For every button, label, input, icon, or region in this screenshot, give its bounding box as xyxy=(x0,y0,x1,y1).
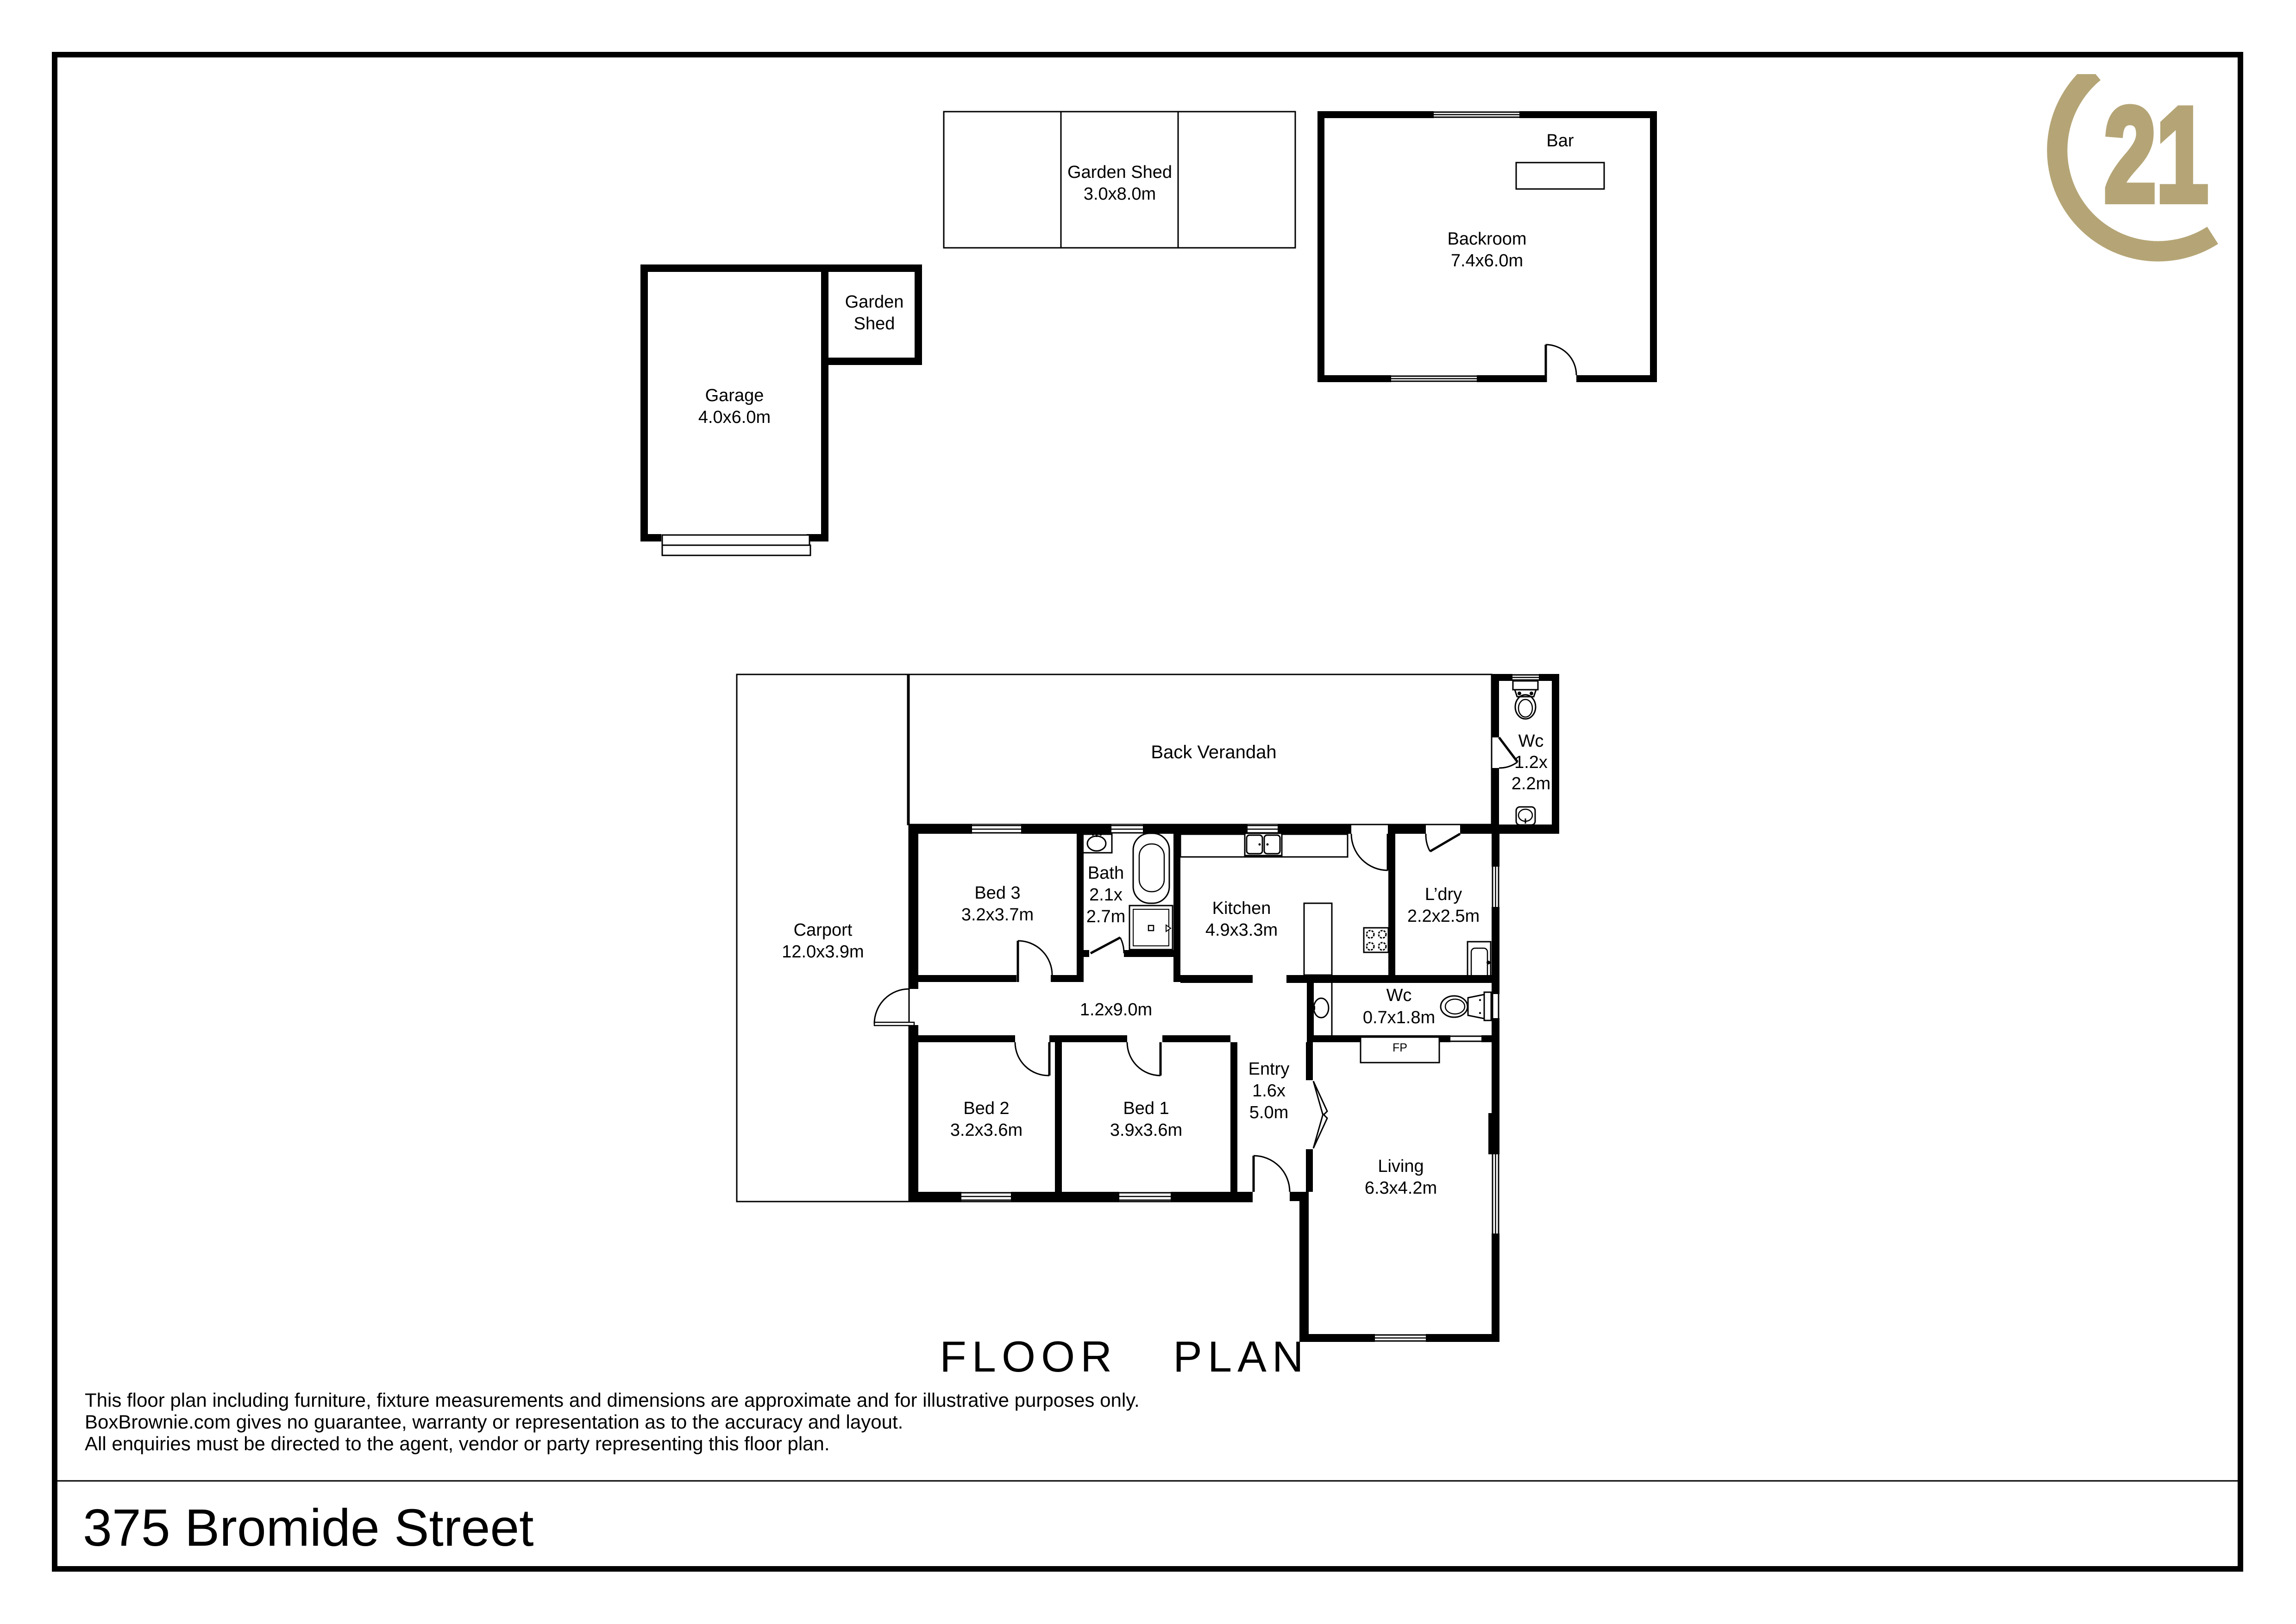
svg-text:Carport: Carport xyxy=(794,920,853,940)
svg-text:BoxBrownie.com gives no guaran: BoxBrownie.com gives no guarantee, warra… xyxy=(85,1411,903,1433)
svg-text:L’dry: L’dry xyxy=(1425,885,1462,904)
svg-text:6.3x4.2m: 6.3x4.2m xyxy=(1365,1178,1437,1198)
svg-text:4.9x3.3m: 4.9x3.3m xyxy=(1205,920,1278,940)
svg-text:1.2x: 1.2x xyxy=(1514,753,1548,772)
svg-text:Shed: Shed xyxy=(854,314,895,334)
svg-text:2.1x: 2.1x xyxy=(1089,885,1123,905)
svg-text:3.0x8.0m: 3.0x8.0m xyxy=(1084,184,1156,204)
svg-text:FLOOR PLAN: FLOOR PLAN xyxy=(940,1332,1309,1381)
svg-text:Bath: Bath xyxy=(1088,863,1124,883)
svg-text:21: 21 xyxy=(2104,80,2208,230)
svg-text:Bed 1: Bed 1 xyxy=(1123,1099,1169,1118)
svg-text:Garage: Garage xyxy=(705,386,764,405)
svg-text:5.0m: 5.0m xyxy=(1249,1103,1288,1122)
svg-text:Entry: Entry xyxy=(1248,1059,1290,1079)
svg-text:Garden: Garden xyxy=(845,292,904,312)
svg-text:12.0x3.9m: 12.0x3.9m xyxy=(782,942,864,962)
svg-text:FP: FP xyxy=(1393,1041,1407,1054)
svg-text:3.9x3.6m: 3.9x3.6m xyxy=(1110,1120,1182,1140)
svg-text:Bar: Bar xyxy=(1546,131,1574,151)
svg-text:Backroom: Backroom xyxy=(1447,229,1526,249)
svg-text:Wc: Wc xyxy=(1518,731,1544,751)
svg-text:3.2x3.6m: 3.2x3.6m xyxy=(950,1120,1023,1140)
svg-text:4.0x6.0m: 4.0x6.0m xyxy=(698,408,771,427)
svg-text:2.7m: 2.7m xyxy=(1086,907,1125,926)
svg-text:Wc: Wc xyxy=(1386,986,1412,1005)
svg-text:Garden Shed: Garden Shed xyxy=(1067,163,1172,182)
svg-text:375 Bromide Street: 375 Bromide Street xyxy=(83,1498,534,1557)
svg-text:Back Verandah: Back Verandah xyxy=(1151,742,1276,762)
svg-text:3.2x3.7m: 3.2x3.7m xyxy=(961,905,1034,925)
svg-text:1.6x: 1.6x xyxy=(1252,1081,1286,1101)
svg-text:1.2x9.0m: 1.2x9.0m xyxy=(1080,1000,1152,1020)
svg-text:All enquiries must be directed: All enquiries must be directed to the ag… xyxy=(85,1433,830,1454)
svg-text:2.2x2.5m: 2.2x2.5m xyxy=(1407,906,1480,926)
svg-text:7.4x6.0m: 7.4x6.0m xyxy=(1451,251,1523,271)
svg-text:Kitchen: Kitchen xyxy=(1212,899,1271,918)
svg-text:Living: Living xyxy=(1378,1157,1424,1176)
svg-text:Bed 3: Bed 3 xyxy=(974,883,1020,903)
svg-text:2.2m: 2.2m xyxy=(1512,774,1550,793)
svg-text:0.7x1.8m: 0.7x1.8m xyxy=(1363,1008,1435,1027)
svg-text:This floor plan including furn: This floor plan including furniture, fix… xyxy=(85,1389,1140,1411)
svg-text:Bed 2: Bed 2 xyxy=(963,1099,1009,1118)
